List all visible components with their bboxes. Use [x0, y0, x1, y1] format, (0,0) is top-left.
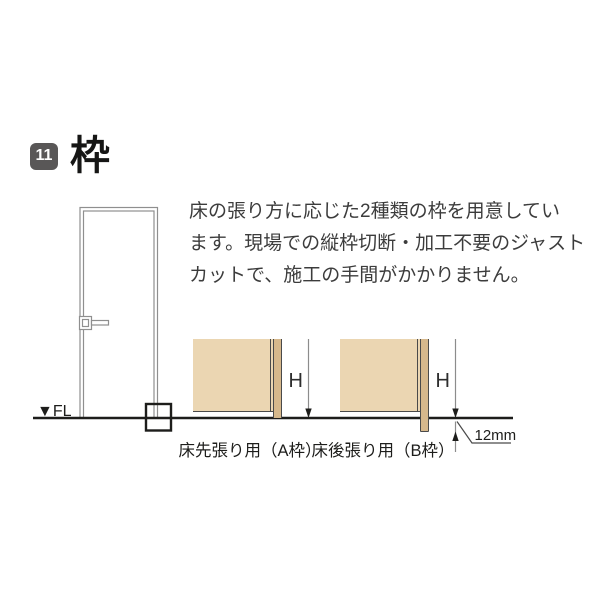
door-frame-outer	[80, 208, 158, 419]
door-frame-inner	[84, 211, 155, 418]
label-frame-a: 床先張り用（A枠）	[178, 441, 321, 460]
wall-section-b	[340, 339, 429, 411]
page: 11 枠 床の張り方に応じた2種類の枠を用意してい ます。現場での縦枠切断・加工…	[0, 0, 600, 600]
frame-strip-a	[274, 339, 282, 418]
frame-detail-b: H 12mm	[340, 339, 516, 452]
door-elevation	[80, 208, 158, 419]
door-handle-lever	[92, 321, 109, 326]
label-frame-b: 床後張り用（B枠）	[311, 441, 454, 460]
wall-section-a	[193, 339, 282, 411]
offset-arrow-up	[452, 432, 458, 442]
offset-label: 12mm	[475, 427, 517, 444]
figure-canvas: ▼FL H	[0, 0, 600, 600]
height-arrow-down-a	[305, 409, 311, 419]
height-arrow-down-b	[452, 409, 458, 419]
frame-detail-a: H	[193, 339, 312, 418]
height-label-b: H	[436, 370, 450, 392]
door-handle-plate	[80, 317, 92, 330]
height-label-a: H	[289, 370, 303, 392]
frame-strip-b	[421, 339, 429, 432]
floor-level-label: ▼FL	[37, 403, 72, 420]
